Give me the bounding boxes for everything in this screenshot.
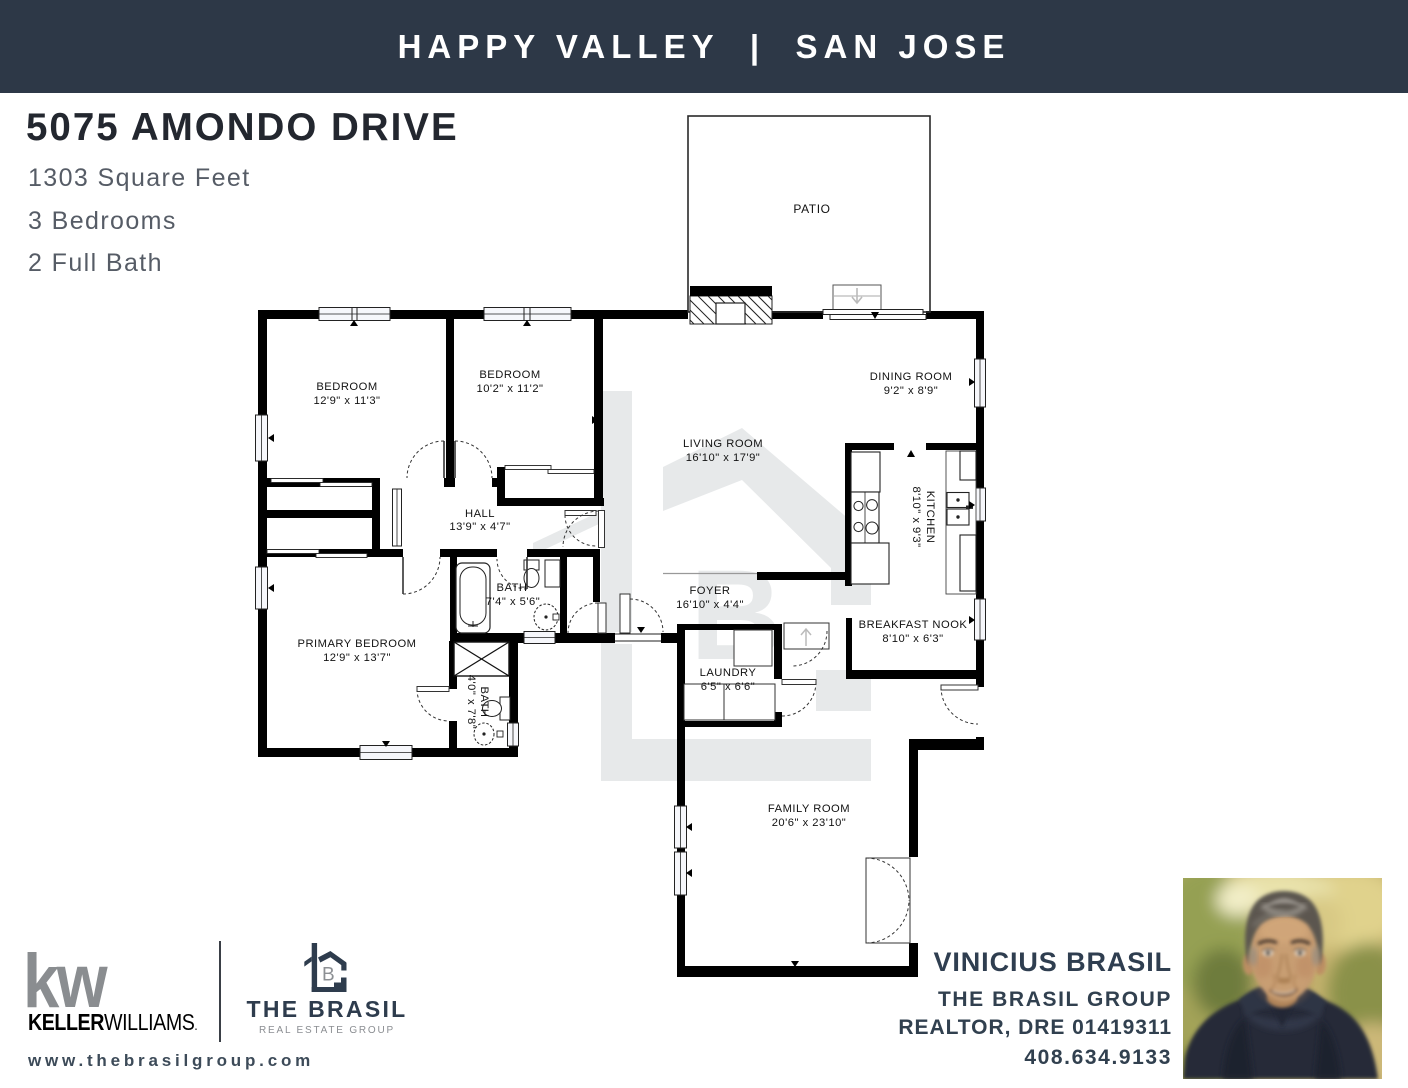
svg-text:B: B [322, 965, 335, 986]
svg-text:FAMILY ROOM: FAMILY ROOM [768, 803, 850, 815]
svg-text:13'9" x 4'7": 13'9" x 4'7" [449, 521, 510, 533]
svg-text:20'6" x 23'10": 20'6" x 23'10" [772, 817, 847, 829]
svg-text:9'2" x 8'9": 9'2" x 8'9" [884, 385, 938, 397]
svg-text:KITCHEN: KITCHEN [924, 491, 936, 544]
svg-text:DINING ROOM: DINING ROOM [870, 371, 953, 383]
svg-text:12'9" x 13'7": 12'9" x 13'7" [323, 652, 391, 664]
svg-text:12'9" x 11'3": 12'9" x 11'3" [313, 395, 380, 407]
svg-text:BREAKFAST NOOK: BREAKFAST NOOK [859, 619, 968, 631]
svg-text:LIVING ROOM: LIVING ROOM [683, 438, 763, 450]
svg-text:LAUNDRY: LAUNDRY [700, 667, 757, 679]
svg-text:THE BRASIL: THE BRASIL [247, 996, 408, 1022]
svg-text:BATH: BATH [478, 686, 490, 717]
svg-text:6'5" x 6'6": 6'5" x 6'6" [701, 681, 755, 693]
svg-text:BEDROOM: BEDROOM [479, 369, 540, 381]
svg-text:BATH: BATH [496, 582, 527, 594]
svg-text:PATIO: PATIO [793, 202, 830, 216]
svg-text:8'10" x 6'3": 8'10" x 6'3" [882, 633, 943, 645]
svg-text:8'10" x 9'3": 8'10" x 9'3" [910, 486, 922, 547]
svg-text:HALL: HALL [465, 508, 495, 520]
svg-text:7'4" x 5'6": 7'4" x 5'6" [486, 596, 540, 608]
svg-text:16'10" x 4'4": 16'10" x 4'4" [676, 599, 744, 611]
svg-text:BEDROOM: BEDROOM [316, 381, 377, 393]
svg-text:16'10" x 17'9": 16'10" x 17'9" [686, 452, 761, 464]
svg-text:PRIMARY BEDROOM: PRIMARY BEDROOM [298, 638, 417, 650]
svg-text:FOYER: FOYER [689, 585, 730, 597]
svg-text:REAL ESTATE GROUP: REAL ESTATE GROUP [259, 1025, 395, 1036]
svg-text:4'0" x 7'8": 4'0" x 7'8" [465, 675, 477, 729]
svg-text:10'2" x 11'2": 10'2" x 11'2" [476, 383, 543, 395]
